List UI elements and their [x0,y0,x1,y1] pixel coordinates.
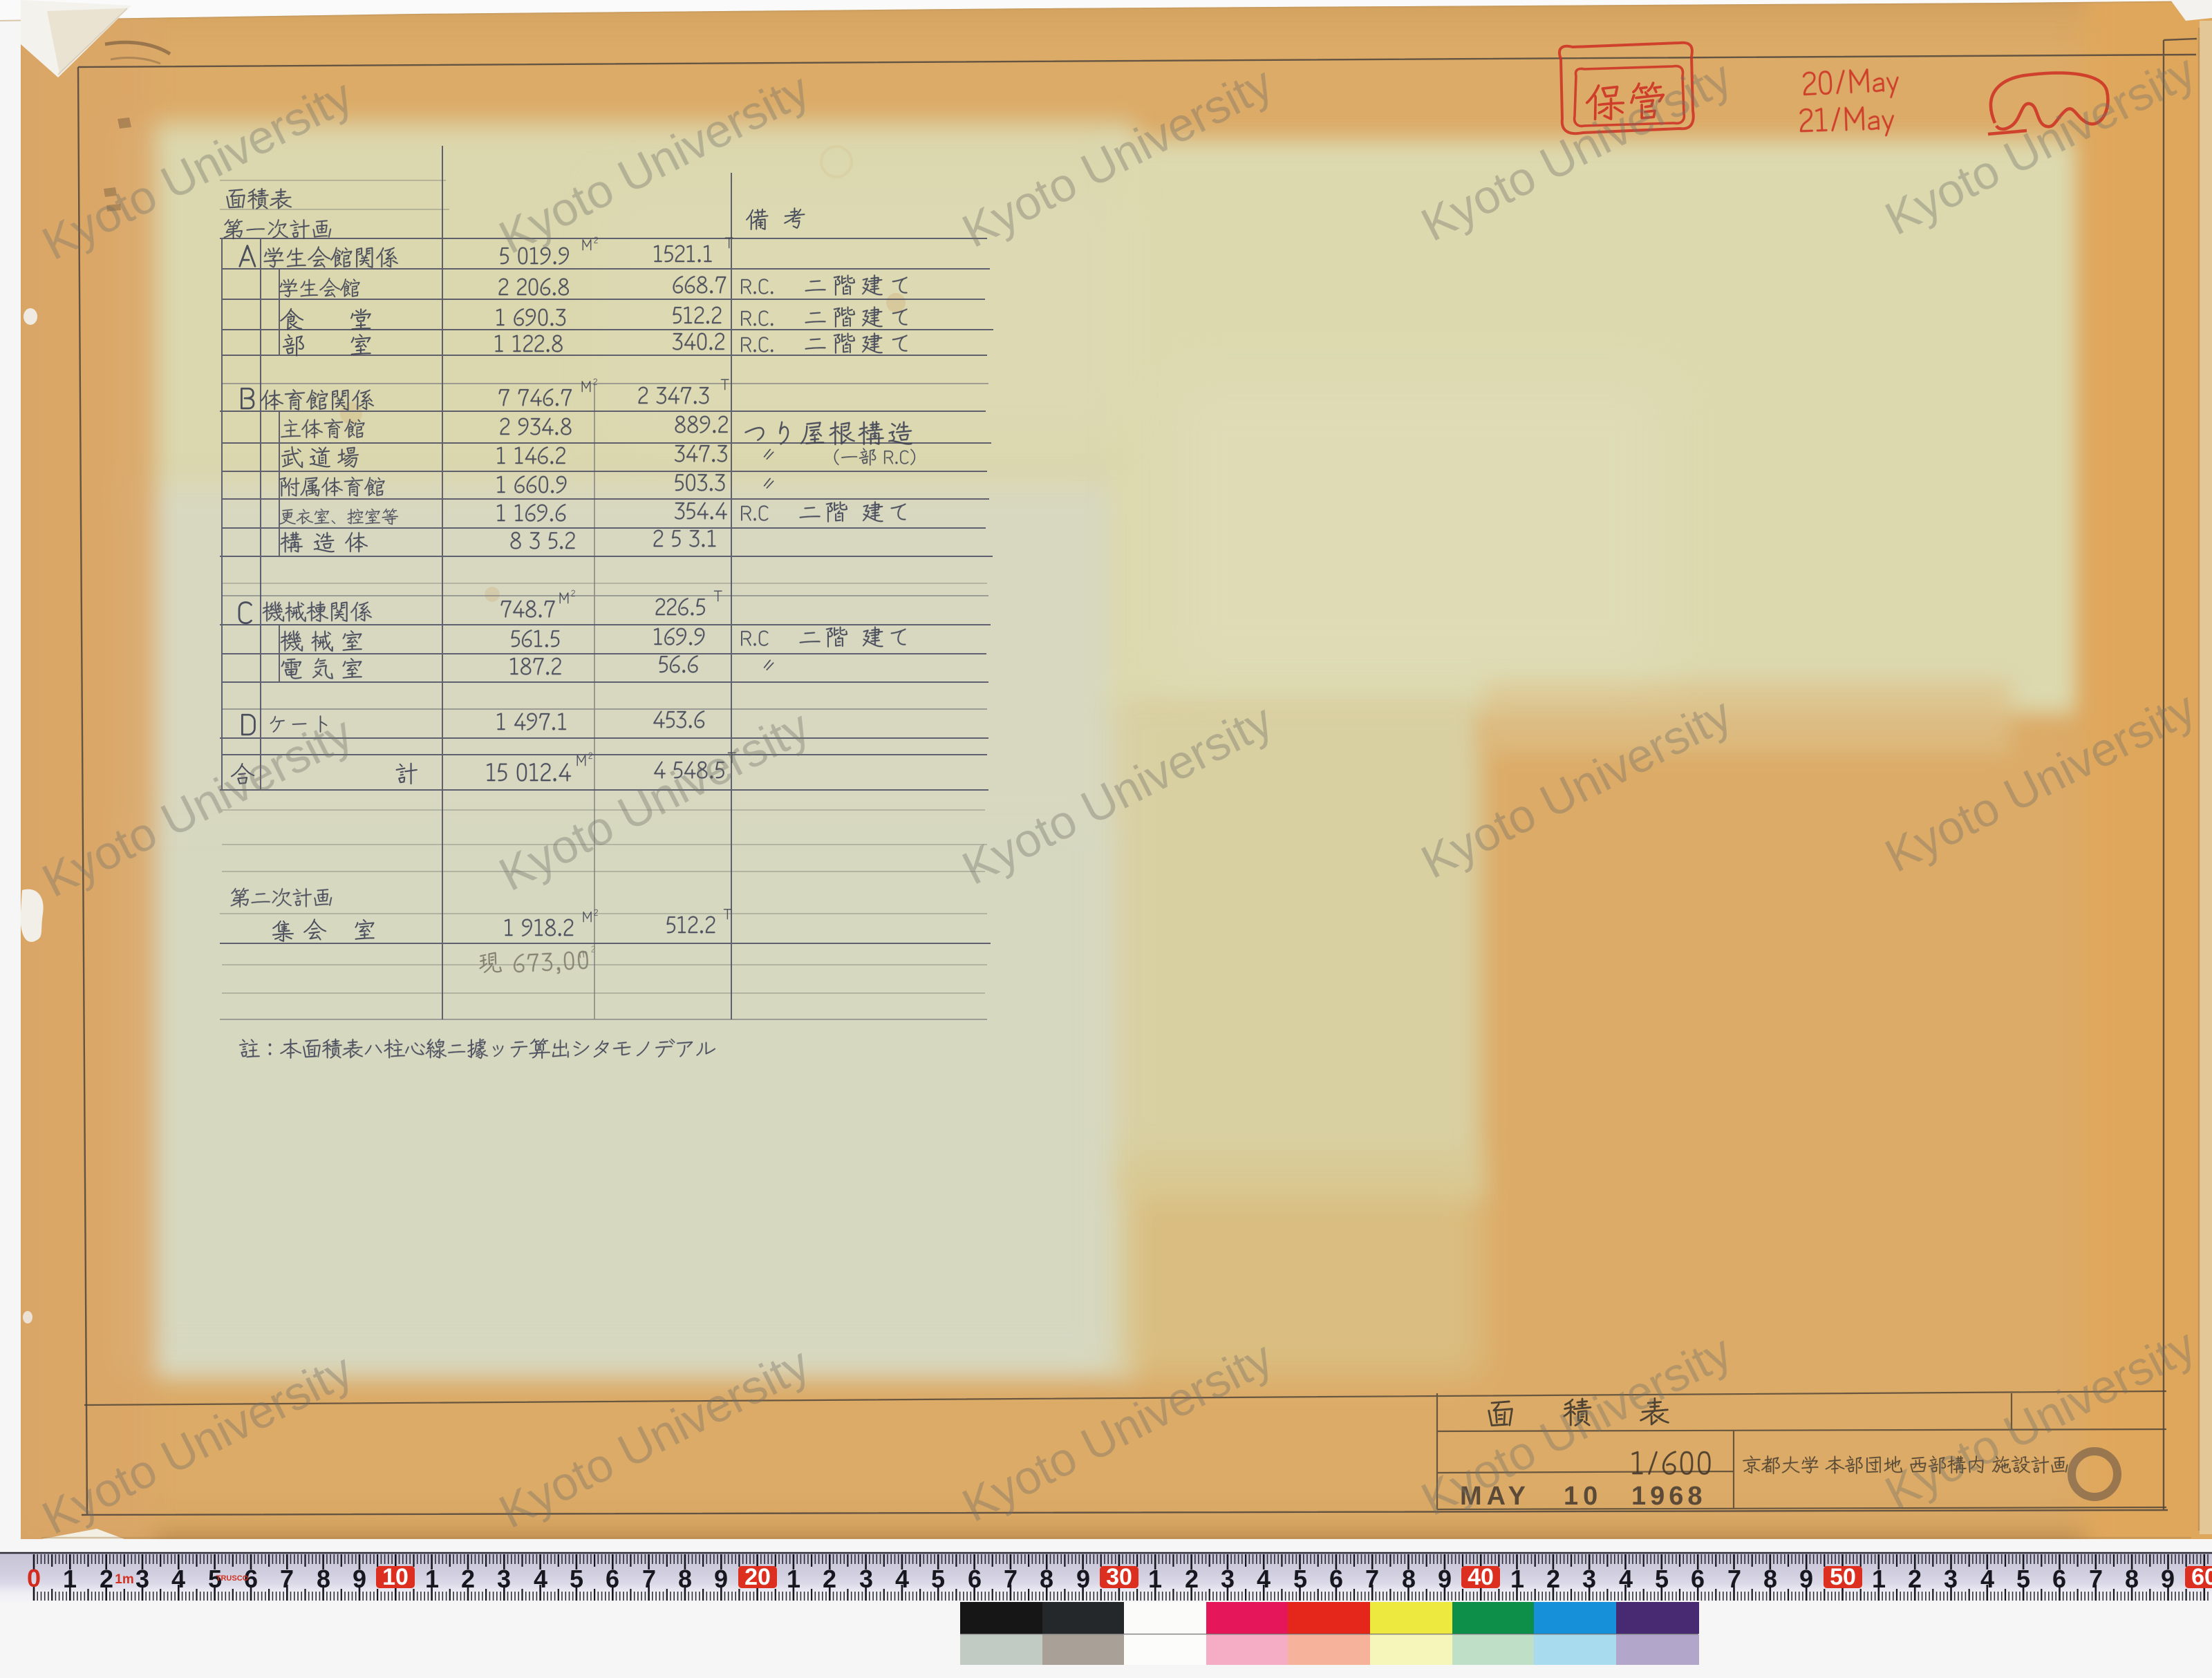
svg-text:1m: 1m [115,1572,133,1587]
svg-text:3: 3 [1221,1565,1235,1593]
svg-text:20: 20 [744,1564,771,1590]
svg-text:6: 6 [1691,1565,1705,1593]
svg-text:7: 7 [1727,1565,1741,1593]
svg-text:8: 8 [317,1565,330,1593]
svg-text:7: 7 [2089,1565,2103,1593]
svg-text:5: 5 [1293,1565,1307,1593]
svg-text:6: 6 [2052,1565,2066,1593]
svg-text:8: 8 [678,1565,692,1593]
svg-text:60: 60 [2191,1564,2212,1590]
svg-text:3: 3 [1582,1565,1596,1593]
svg-text:8: 8 [2125,1565,2139,1593]
svg-text:Kyoto University: Kyoto University [954,1331,1280,1532]
svg-text:4: 4 [1980,1565,1994,1593]
svg-text:6: 6 [606,1565,619,1593]
svg-text:5: 5 [2016,1565,2030,1593]
svg-text:Kyoto University: Kyoto University [1413,688,1739,889]
svg-text:0: 0 [27,1564,41,1592]
svg-text:1: 1 [63,1565,77,1593]
svg-text:6: 6 [968,1565,982,1593]
svg-text:4: 4 [1619,1565,1633,1593]
svg-text:4: 4 [171,1565,185,1593]
svg-text:7: 7 [1365,1565,1379,1593]
svg-text:Kyoto University: Kyoto University [491,63,817,264]
svg-text:Kyoto University: Kyoto University [1877,681,2203,883]
svg-text:3: 3 [859,1565,873,1593]
svg-text:Kyoto University: Kyoto University [1877,1319,2203,1520]
svg-text:TRUSCO: TRUSCO [216,1574,249,1583]
svg-text:1: 1 [425,1565,439,1593]
svg-text:4: 4 [534,1565,547,1593]
svg-text:1: 1 [1510,1565,1524,1593]
svg-text:8: 8 [1040,1565,1053,1593]
svg-text:3: 3 [497,1565,511,1593]
svg-text:Kyoto University: Kyoto University [954,694,1280,895]
svg-text:7: 7 [280,1565,294,1593]
svg-text:Kyoto University: Kyoto University [34,69,360,270]
svg-text:9: 9 [1076,1565,1090,1593]
svg-text:9: 9 [1799,1565,1813,1593]
svg-text:9: 9 [2161,1565,2175,1593]
svg-text:4: 4 [895,1565,909,1593]
svg-text:9: 9 [353,1565,366,1593]
svg-text:10: 10 [382,1564,409,1590]
svg-text:5: 5 [1655,1565,1669,1593]
svg-text:1968: 1968 [1631,1482,1707,1511]
svg-text:50: 50 [1830,1564,1856,1590]
svg-text:2: 2 [823,1565,836,1593]
svg-text:1: 1 [787,1565,800,1593]
svg-text:3: 3 [1944,1565,1958,1593]
svg-text:3: 3 [135,1565,149,1593]
svg-text:7: 7 [1004,1565,1018,1593]
svg-text:2: 2 [100,1565,113,1593]
svg-text:10: 10 [1564,1482,1602,1511]
svg-text:8: 8 [1763,1565,1777,1593]
svg-text:2: 2 [1185,1565,1199,1593]
svg-text:8: 8 [1402,1565,1416,1593]
svg-text:6: 6 [1329,1565,1343,1593]
svg-text:30: 30 [1106,1564,1132,1590]
svg-text:2: 2 [461,1565,475,1593]
svg-text:Kyoto University: Kyoto University [491,700,817,901]
svg-text:4: 4 [1257,1565,1271,1593]
svg-text:2: 2 [1546,1565,1560,1593]
svg-text:9: 9 [1438,1565,1452,1593]
svg-text:Kyoto University: Kyoto University [491,1337,817,1538]
svg-text:5: 5 [931,1565,945,1593]
svg-text:1: 1 [1872,1565,1886,1593]
svg-text:9: 9 [714,1565,728,1593]
svg-text:1: 1 [1148,1565,1162,1593]
svg-text:5: 5 [570,1565,583,1593]
svg-text:40: 40 [1468,1564,1494,1590]
svg-text:2: 2 [1908,1565,1922,1593]
svg-text:7: 7 [642,1565,656,1593]
svg-text:Kyoto University: Kyoto University [954,57,1280,258]
